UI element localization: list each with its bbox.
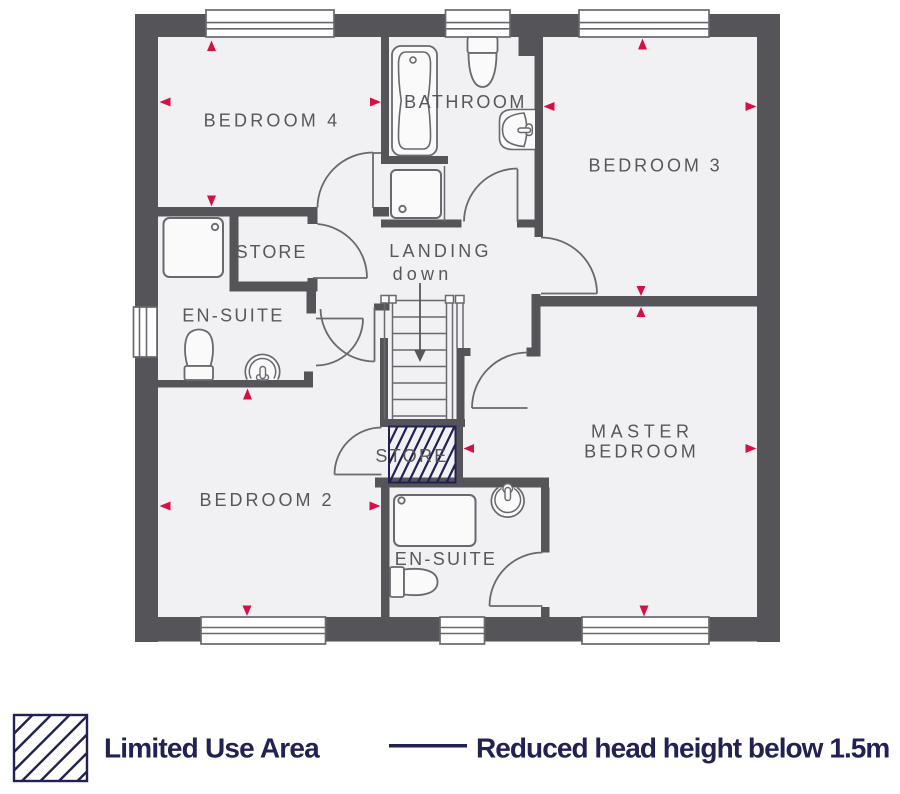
svg-text:MASTER: MASTER [591, 422, 694, 442]
svg-text:Reduced head height below 1.5m: Reduced head height below 1.5m [476, 733, 889, 764]
svg-text:STORE: STORE [375, 446, 448, 466]
svg-text:EN-SUITE: EN-SUITE [395, 549, 497, 569]
svg-text:BEDROOM 3: BEDROOM 3 [588, 156, 722, 176]
svg-text:BATHROOM: BATHROOM [404, 92, 527, 112]
svg-text:LANDING: LANDING [389, 241, 491, 261]
svg-text:down: down [393, 264, 453, 284]
svg-text:BEDROOM: BEDROOM [584, 442, 699, 462]
svg-text:STORE: STORE [236, 242, 308, 262]
svg-text:BEDROOM 2: BEDROOM 2 [199, 490, 334, 510]
svg-text:BEDROOM 4: BEDROOM 4 [204, 111, 341, 131]
svg-text:EN-SUITE: EN-SUITE [182, 306, 284, 326]
svg-text:Limited Use Area: Limited Use Area [104, 733, 320, 764]
